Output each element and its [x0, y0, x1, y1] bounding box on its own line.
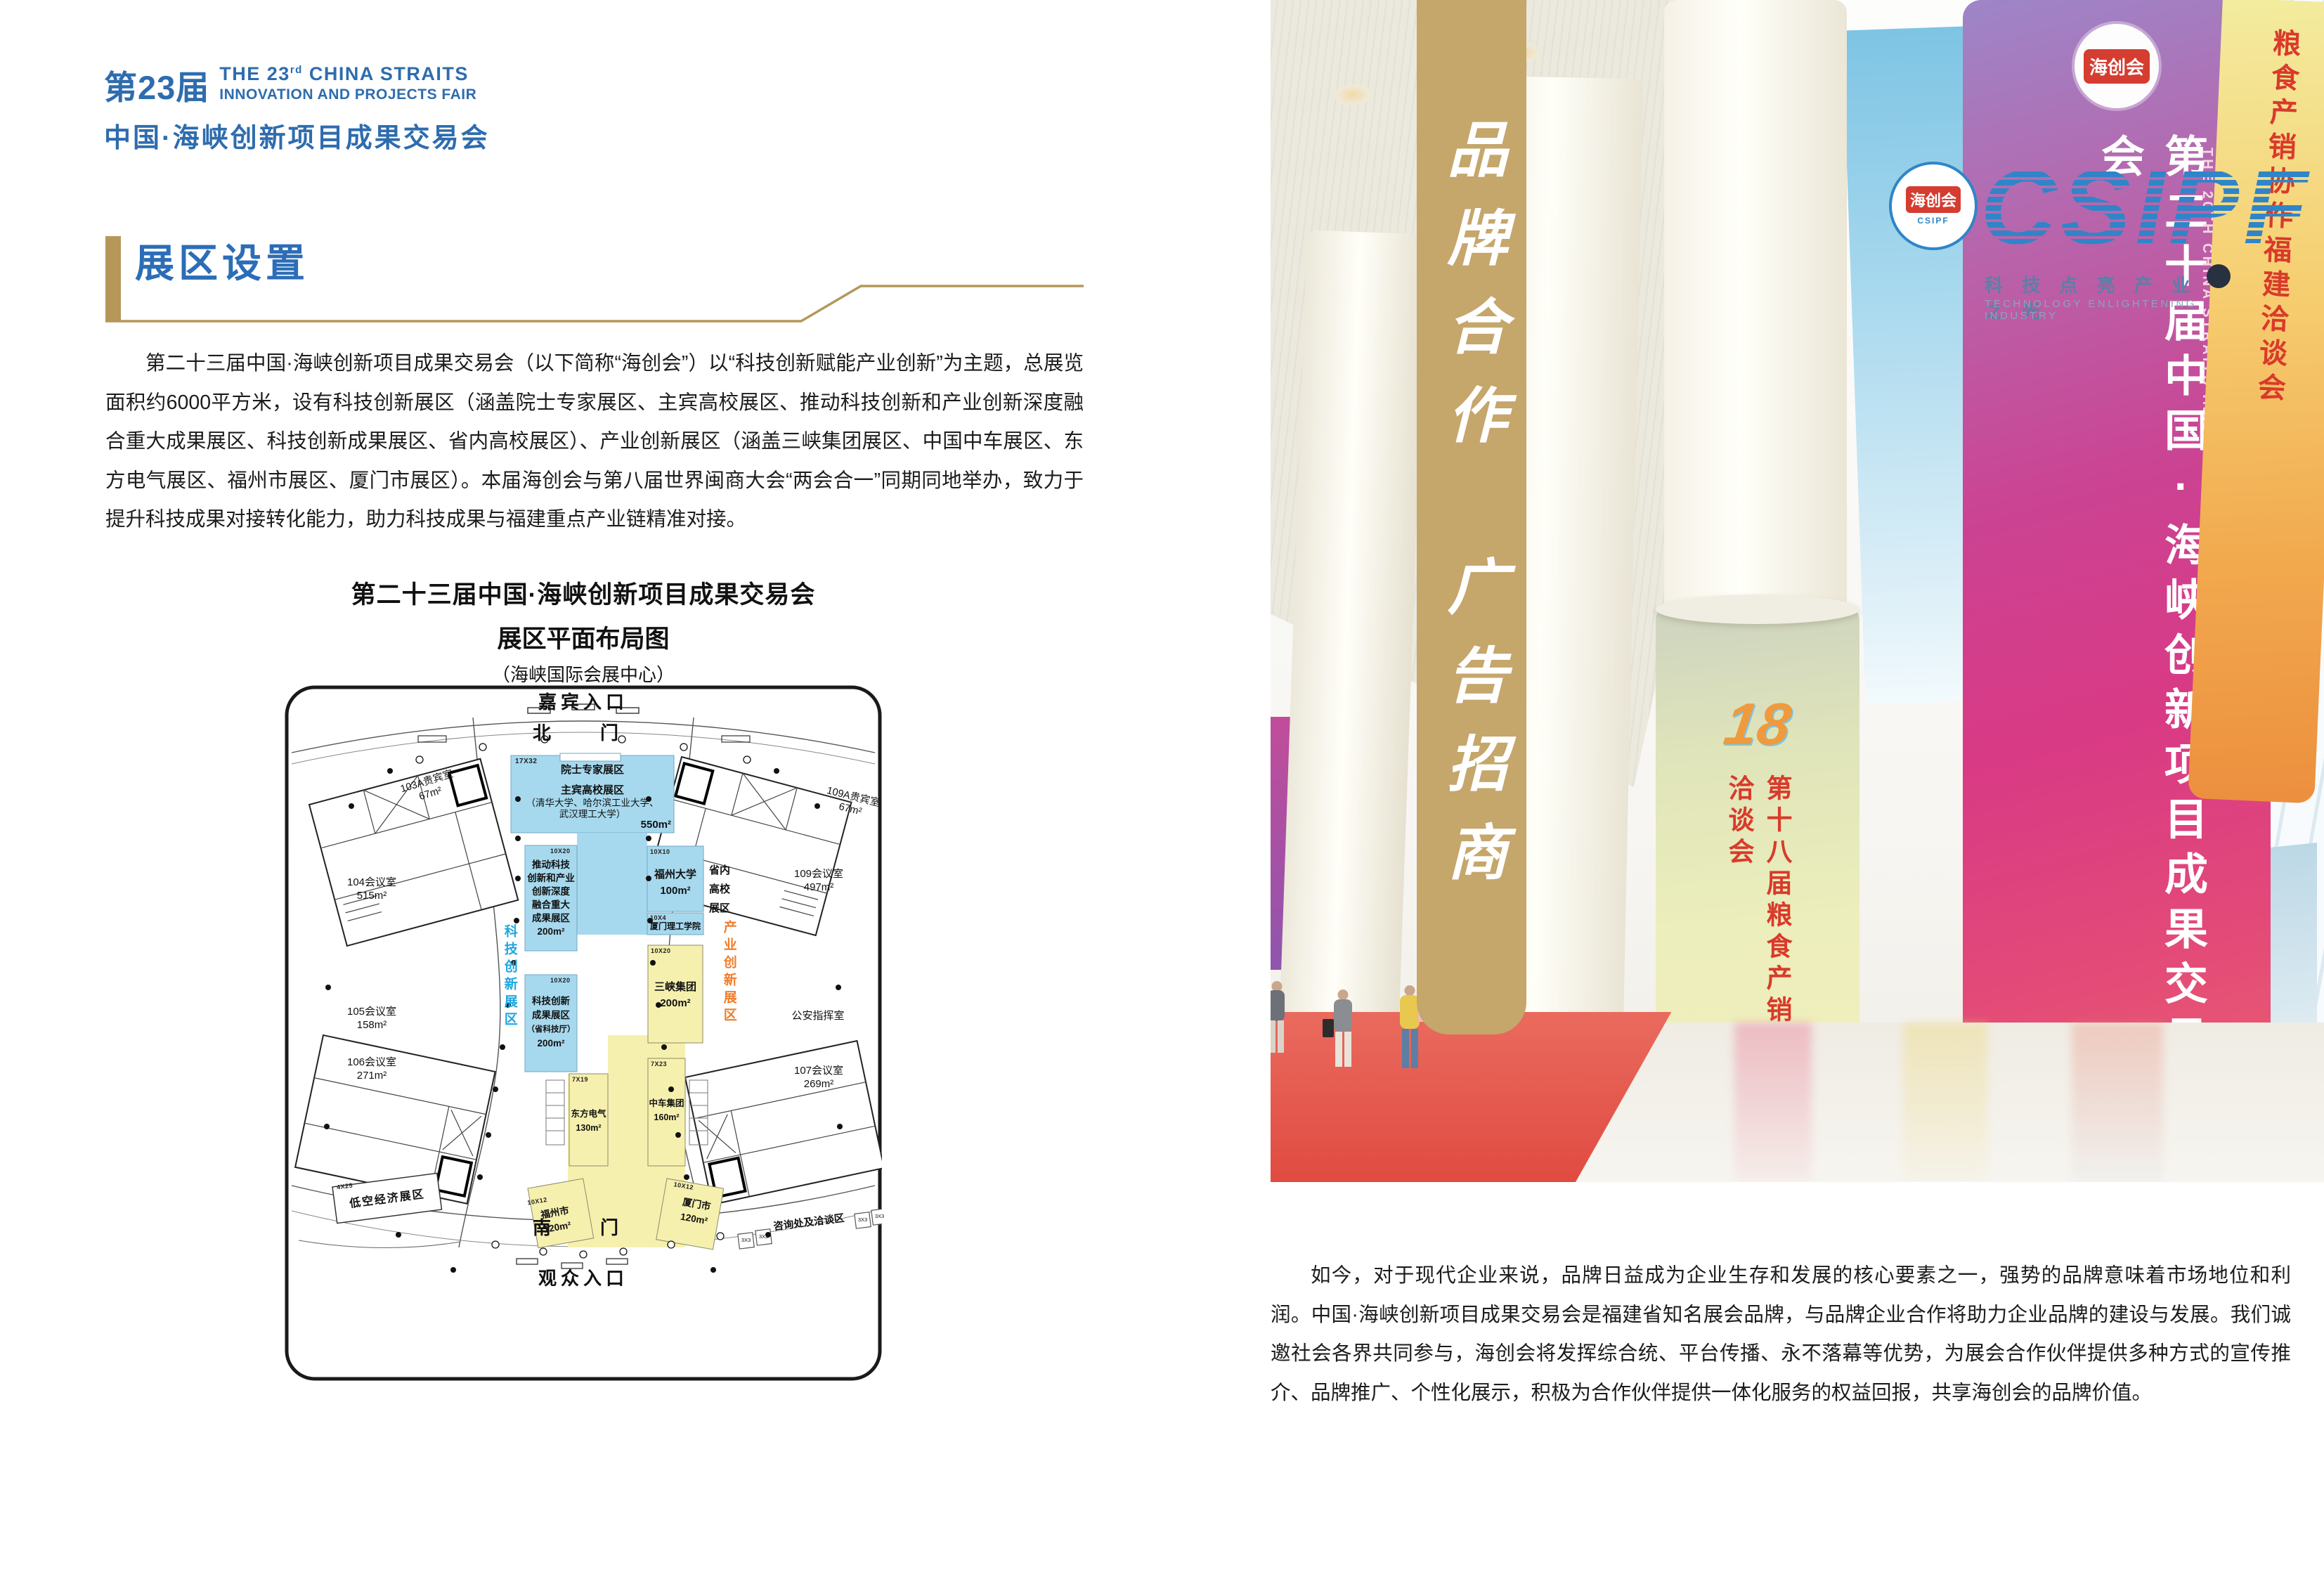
tag-tech-result: 10X20 — [550, 977, 571, 984]
zone-tech-innovation: 科技创新展区 — [501, 924, 518, 1030]
person-gray — [1331, 989, 1355, 1074]
csipf-wordmark: CSIPF — [1980, 146, 2312, 268]
csipf-mascot — [2207, 264, 2231, 288]
booth-tech-result: 科技创新成果展区 （省科技厅）200m² — [524, 994, 578, 1051]
plan-title-line3: （海峡国际会展中心） — [285, 661, 882, 687]
label-provincial-universities: 省内高校展区 — [708, 861, 732, 918]
seal-text: 海创会 — [2084, 49, 2150, 84]
csipf-tagline-en: TECHNOLOGY ENLIGHTENING INDUSTRY — [1985, 298, 2219, 322]
gold-vertical-banner: 品牌合作 广告招商 — [1417, 0, 1526, 1034]
booth-dongfang: 东方电气130m² — [569, 1107, 608, 1135]
plan-public-entrance: 观众入口 — [285, 1267, 882, 1290]
room-104: 104会议室515m² — [330, 876, 414, 903]
logo-en-line1: THE 23rd CHINA STRAITS — [219, 63, 476, 85]
floor-plan: 嘉宾入口 北 门 17X32 院士专家展区 主宾高校展区 （清华大学、哈尔滨工业… — [285, 685, 882, 1381]
logo-en-line2: INNOVATION AND PROJECTS FAIR — [219, 86, 476, 103]
plan-title-line1: 第二十三届中国·海峡创新项目成果交易会 — [285, 575, 882, 611]
banner-18-number: 18 — [1720, 690, 1795, 758]
csipf-seal: 海创会 CSIPF — [1889, 162, 1978, 250]
csipf-seal-en: CSIPF — [1917, 216, 1949, 226]
room-106: 106会议室271m² — [330, 1056, 414, 1083]
plan-south-gate: 南 门 — [285, 1216, 882, 1240]
closing-paragraph: 如今，对于现代企业来说，品牌日益成为企业生存和发展的核心要素之一，强势的品牌意味… — [1271, 1257, 2291, 1413]
zone-industry-innovation: 产业创新展区 — [720, 920, 737, 1025]
room-107: 107会议室269m² — [777, 1065, 861, 1091]
tag-promote: 10X20 — [550, 848, 571, 855]
banner-text-brand-cooperation: 品牌合作 — [1417, 118, 1526, 472]
tag-xmut: 10X4 — [650, 914, 666, 921]
tag-dongfang: 7X19 — [572, 1076, 588, 1083]
booth-sanxia: 三峡集团200m² — [648, 979, 703, 1011]
booth-academician-area: 550m² — [615, 819, 671, 832]
orange-column-text: 粮食产销协作福建洽谈会 — [2233, 27, 2305, 760]
room-police: 公安指挥室 — [776, 1010, 860, 1023]
ceiling-light — [1334, 84, 1372, 105]
logo-edition: 第23届 — [104, 60, 209, 109]
tag-sanxia: 10X20 — [651, 947, 671, 954]
booth-crrc: 中车集团160m² — [648, 1096, 685, 1124]
brochure-spread: 第23届 THE 23rd CHINA STRAITS INNOVATION A… — [0, 0, 2324, 1577]
csipf-seal-cn: 海创会 — [1906, 186, 1961, 213]
column-cap — [1656, 595, 1859, 624]
csipf-logo-block: 海创会 CSIPF CSIPF 科 技 点 亮 产 业 之 光 TECHNOLO… — [1889, 141, 2219, 337]
floor-reflection-pink — [1734, 1023, 1812, 1182]
plan-north-gate: 北 门 — [285, 722, 882, 745]
booth-promote: 推动科技创新和产业创新深度 融合重大成果展区200m² — [525, 858, 577, 938]
fair-logo: 第23届 THE 23rd CHINA STRAITS INNOVATION A… — [104, 60, 490, 155]
booth-academician: 院士专家展区 主宾高校展区 （清华大学、哈尔滨工业大学、 武汉理工大学） — [511, 764, 674, 821]
banner-text-ad-investment: 广告招商 — [1417, 555, 1526, 909]
plan-guest-entrance: 嘉宾入口 — [285, 691, 882, 714]
logo-cn: 中国·海峡创新项目成果交易会 — [104, 116, 490, 155]
booth-xmut: 厦门理工学院 — [647, 921, 703, 932]
floor-reflection-orange — [2072, 1023, 2163, 1182]
floor-reflection-yellow — [1903, 1023, 1987, 1182]
room-105: 105会议室158m² — [330, 1006, 414, 1032]
tag-fzu: 10X10 — [650, 848, 670, 855]
booth-fzu: 福州大学100m² — [647, 867, 703, 899]
plan-title-line2: 展区平面布局图 — [285, 619, 882, 655]
room-109: 109会议室497m² — [777, 868, 861, 895]
tag-crrc: 7X23 — [651, 1060, 667, 1067]
person-partial — [1271, 981, 1287, 1058]
section-underline — [104, 278, 1088, 327]
white-column-large — [1664, 0, 1847, 632]
intro-paragraph: 第二十三届中国·海峡创新项目成果交易会（以下简称“海创会”）以“科技创新赋能产业… — [105, 344, 1084, 540]
plan-title-block: 第二十三届中国·海峡创新项目成果交易会 展区平面布局图 （海峡国际会展中心） — [285, 575, 882, 687]
seal-haichuanghui: 海创会 — [2075, 24, 2159, 108]
